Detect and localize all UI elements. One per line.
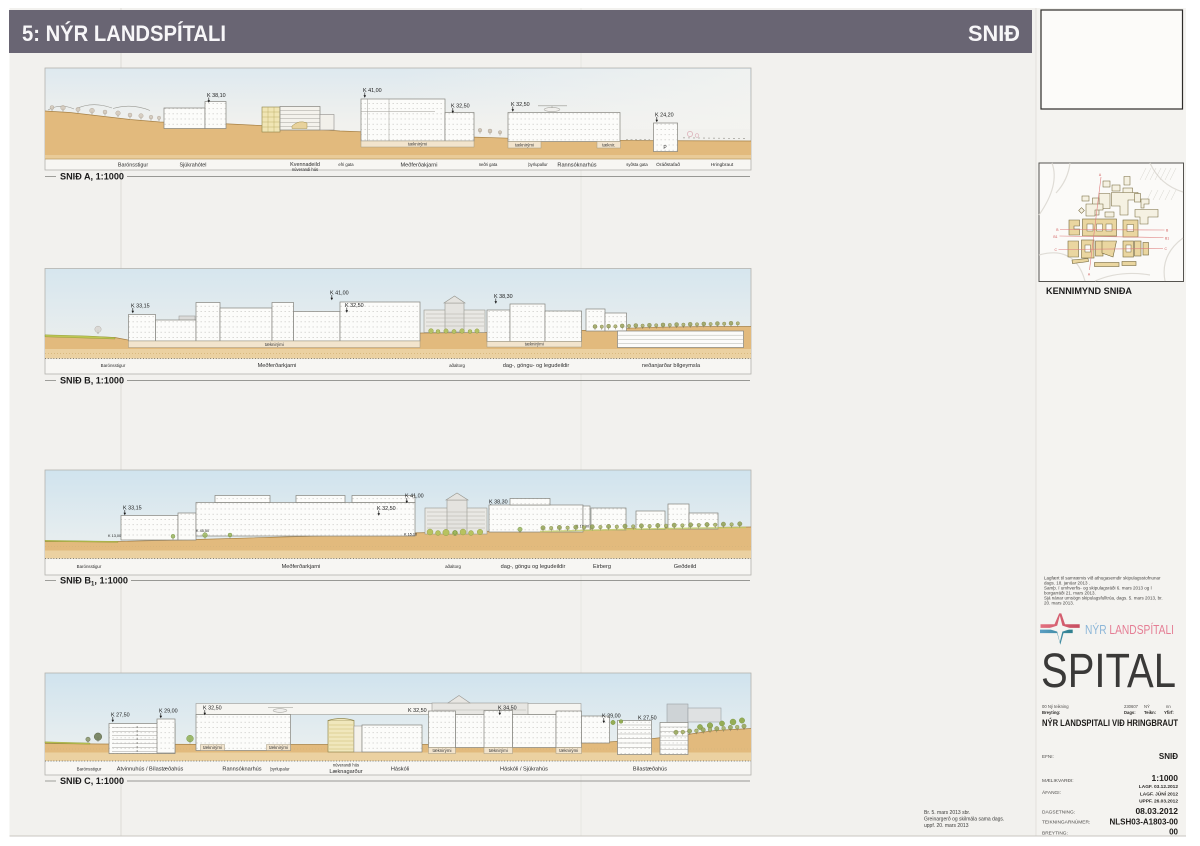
svg-text:K 41,00: K 41,00 [363,88,382,94]
svg-text:K 33,15: K 33,15 [123,506,142,512]
svg-text:Meðferðakjarni: Meðferðakjarni [401,162,438,169]
svg-text:tæknirými: tæknirými [203,745,222,750]
svg-text:20. mars 2013.: 20. mars 2013. [1044,601,1074,606]
svg-text:SNIÐ C, 1:1000: SNIÐ C, 1:1000 [60,776,124,786]
svg-text:K 32,50: K 32,50 [451,104,470,110]
svg-text:Teikn:: Teikn: [1144,710,1156,715]
svg-text:K 45,50: K 45,50 [196,529,209,533]
svg-text:K 32,50: K 32,50 [345,303,364,309]
svg-text:K 29,00: K 29,00 [159,709,178,715]
svg-text:syðsta gata: syðsta gata [626,162,648,167]
svg-text:Greinargerð og skilmála sama d: Greinargerð og skilmála sama dags. [924,816,1004,823]
svg-text:SNIÐ B, 1:1000: SNIÐ B, 1:1000 [60,376,124,386]
svg-text:K 24,20: K 24,20 [655,113,674,119]
svg-text:aðaltorg: aðaltorg [445,564,461,569]
svg-text:neðri gata: neðri gata [479,162,498,167]
svg-text:tæknirými: tæknirými [432,748,451,753]
svg-text:K 41,00: K 41,00 [405,494,424,500]
svg-text:NLSH03-A1803-00: NLSH03-A1803-00 [1110,818,1179,827]
svg-text:Dags:: Dags: [1124,710,1136,715]
svg-text:Barónsstigur: Barónsstigur [77,564,102,569]
svg-text:NÝR LANDSPÍTALI: NÝR LANDSPÍTALI [1085,622,1174,637]
svg-text:dag-, göngu og legudeildir: dag-, göngu og legudeildir [501,564,566,570]
svg-text:DAGSETNING:: DAGSETNING: [1042,810,1075,816]
svg-text:MÆLIKVARÐI:: MÆLIKVARÐI: [1042,778,1074,784]
svg-text:K 32,50: K 32,50 [511,102,530,108]
svg-text:Læknagarður: Læknagarður [329,768,362,775]
svg-text:UPPF. 26.03.2012: UPPF. 26.03.2012 [1139,799,1178,805]
svg-text:NÝR LANDSPITALI VIÐ HRINGBRAUT: NÝR LANDSPITALI VIÐ HRINGBRAUT [1042,717,1178,728]
svg-text:K 29,00: K 29,00 [602,714,621,720]
svg-text:K 15,10: K 15,10 [404,533,417,537]
svg-text:00 Ný teikning: 00 Ný teikning [1042,704,1069,709]
svg-text:nn: nn [1166,704,1171,709]
svg-text:BREYTING:: BREYTING: [1042,831,1068,837]
svg-text:K 33,15: K 33,15 [131,304,150,310]
svg-text:K 38,10: K 38,10 [207,93,226,99]
svg-text:aðaltorg: aðaltorg [449,363,465,368]
svg-text:Barónsstigur: Barónsstigur [118,163,148,169]
svg-text:þyrlupalur: þyrlupalur [270,767,290,772]
svg-text:Barónsstigur: Barónsstigur [77,767,102,772]
svg-text:Háskóli: Háskóli [391,767,409,773]
svg-text:tæknir.: tæknir. [602,142,615,147]
svg-text:K 32,50: K 32,50 [408,708,427,714]
svg-text:B1: B1 [1165,237,1169,241]
svg-text:Meðferðarkjarni: Meðferðarkjarni [258,362,297,369]
svg-text:LAGF. 03.12.2012: LAGF. 03.12.2012 [1139,784,1179,790]
svg-text:K 13,00: K 13,00 [108,534,121,538]
svg-text:Barónsstigur: Barónsstigur [101,363,126,368]
svg-text:Bílastæðahús: Bílastæðahús [633,766,667,773]
svg-text:Rannsóknarhús: Rannsóknarhús [557,163,596,169]
svg-text:K 38,30: K 38,30 [494,294,513,300]
svg-text:K 27,50: K 27,50 [111,713,130,719]
svg-text:Hringbraut: Hringbraut [711,162,734,168]
svg-text:Geðdeild: Geðdeild [674,563,696,570]
svg-text:Breyting:: Breyting: [1042,710,1060,715]
svg-text:núverandi hús: núverandi hús [292,167,318,172]
svg-text:Sjúkrahótel: Sjúkrahótel [180,163,207,169]
svg-text:KENNIMYND SNIÐA: KENNIMYND SNIÐA [1046,286,1132,296]
svg-text:230607: 230607 [1124,704,1139,709]
svg-text:Yfirf:: Yfirf: [1164,710,1174,715]
svg-text:efri gata: efri gata [338,162,354,167]
svg-text:1:1000: 1:1000 [1152,773,1179,783]
svg-text:NÝ: NÝ [1144,704,1150,709]
svg-text:neðanjarðar bílgeymsla: neðanjarðar bílgeymsla [642,362,701,369]
svg-text:SNIÐ: SNIÐ [1159,752,1178,761]
svg-text:SNIÐ: SNIÐ [968,21,1020,46]
svg-text:5: NÝR LANDSPÍTALI: 5: NÝR LANDSPÍTALI [22,21,226,46]
svg-text:SPITAL: SPITAL [1041,645,1176,698]
svg-text:K 41,00: K 41,00 [330,291,349,297]
svg-text:B1: B1 [1053,235,1057,239]
svg-text:EFNI:: EFNI: [1042,754,1054,759]
svg-text:Meðferðarkjarni: Meðferðarkjarni [282,563,321,570]
svg-text:núverandi hús: núverandi hús [333,763,359,768]
svg-text:Eirberg: Eirberg [593,564,611,570]
svg-text:TEIKNINGARNÚMER:: TEIKNINGARNÚMER: [1042,819,1090,826]
svg-text:tæknirými: tæknirými [515,142,534,147]
svg-text:dag-, göngu- og legudeildir: dag-, göngu- og legudeildir [503,363,570,369]
svg-text:tæknirými: tæknirými [408,141,427,146]
svg-text:uppf. 20. mars 2013: uppf. 20. mars 2013 [924,823,969,829]
svg-text:K 34,50: K 34,50 [498,706,517,712]
svg-text:ÁFANGI:: ÁFANGI: [1042,789,1061,796]
svg-text:tæknirými: tæknirými [525,341,544,346]
svg-text:K 32,50: K 32,50 [377,506,396,512]
svg-text:K 32,50: K 32,50 [203,706,222,712]
svg-text:tæknirými: tæknirými [265,342,284,347]
svg-text:K 38,30: K 38,30 [489,500,508,506]
svg-text:Atvinnuhús / Bílastæðahús: Atvinnuhús / Bílastæðahús [117,766,184,773]
svg-text:Háskóli / Sjúkrahús: Háskóli / Sjúkrahús [500,767,548,773]
svg-text:SNIÐ A, 1:1000: SNIÐ A, 1:1000 [60,172,124,182]
svg-text:tæknirými: tæknirými [489,748,508,753]
svg-text:tæknirými: tæknirými [559,748,578,753]
svg-text:08.03.2012: 08.03.2012 [1135,806,1178,816]
svg-text:00: 00 [1169,828,1178,837]
svg-text:Br. 5. mars 2013 sbr.: Br. 5. mars 2013 sbr. [924,810,970,816]
svg-text:þyrlupallur: þyrlupallur [528,162,548,167]
svg-text:tæknirými: tæknirými [269,745,288,750]
svg-text:Óráðstafað: Óráðstafað [656,161,680,168]
svg-text:Rannsóknarhús: Rannsóknarhús [222,767,261,773]
